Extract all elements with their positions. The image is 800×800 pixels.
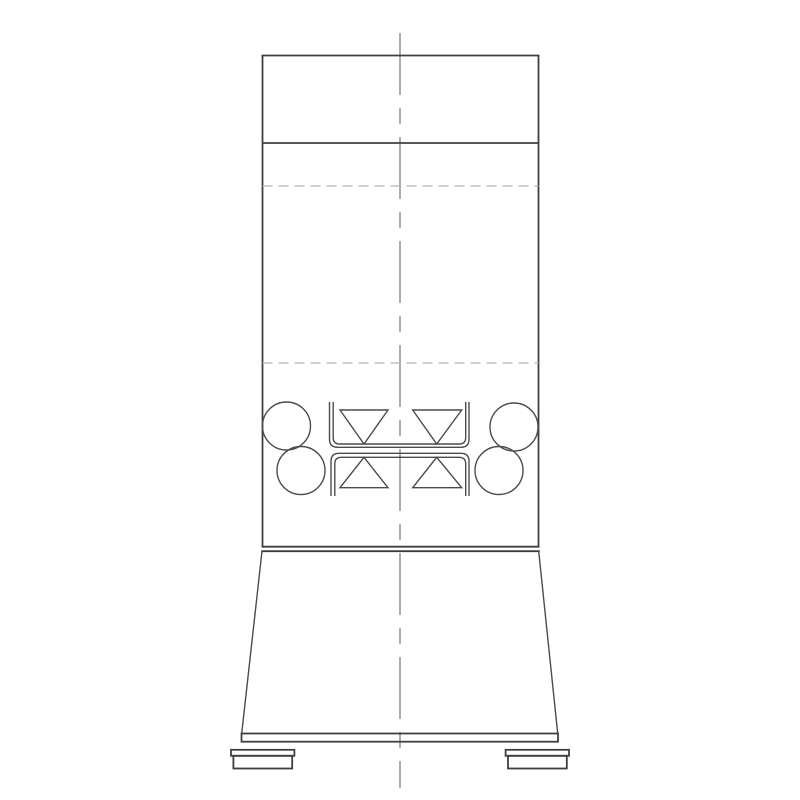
technical-drawing-svg [0,0,800,800]
roller-circle-right-upper [490,403,538,451]
skirt-left-edge [242,551,262,733]
right-foot-body [508,756,567,769]
roller-circle-left-lower [277,447,325,495]
wedge-upper-right [413,410,462,444]
roller-circle-left-upper [263,402,311,450]
skirt-right-edge [539,551,558,733]
wedge-upper-left [340,410,388,444]
roller-circle-right-lower [475,447,523,495]
wedge-lower-left [340,457,388,487]
left-foot-body [233,756,292,769]
wedge-lower-right [413,457,462,487]
drawing-canvas [0,0,800,800]
